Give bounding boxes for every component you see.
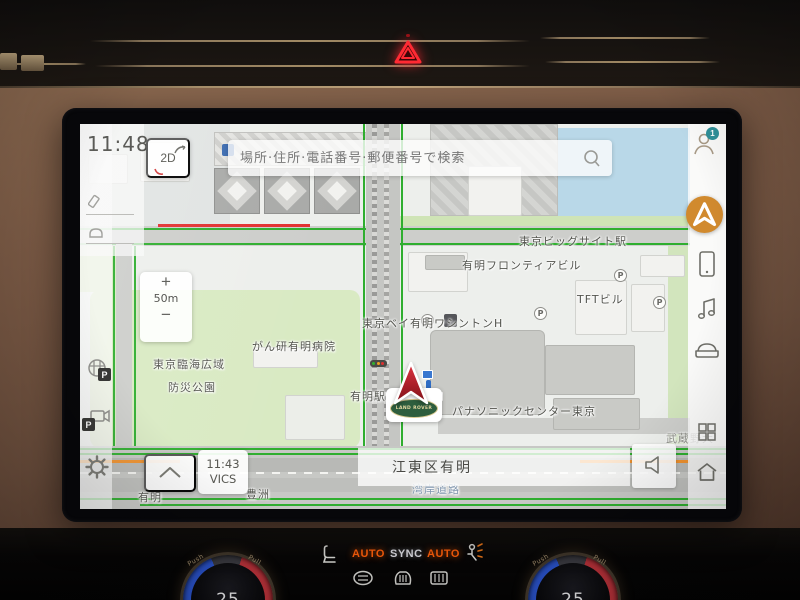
search-bar[interactable]: [228, 140, 612, 176]
right-temp-value: 25: [561, 590, 585, 600]
parking-poi[interactable]: P: [653, 296, 666, 309]
auto-left-button[interactable]: AUTO: [352, 548, 385, 560]
current-location-banner: 江東区有明: [358, 448, 630, 486]
surround-view-parking-button[interactable]: P: [84, 356, 112, 384]
map-label: 有明フロンティアビル: [462, 257, 581, 273]
map-building: [425, 255, 465, 270]
vehicle-button[interactable]: [692, 338, 722, 362]
air-vent-trim: [540, 37, 710, 39]
phone-button[interactable]: [695, 250, 719, 280]
traffic-light-marker: [370, 360, 387, 367]
seat-heat-icon: [352, 569, 374, 587]
zoom-in-button[interactable]: +: [140, 272, 192, 292]
map-building-tft: [575, 280, 627, 335]
map-label: 有明駅: [350, 388, 386, 404]
navigation-arrow-icon: [686, 196, 723, 233]
air-vent-trim: [545, 61, 720, 63]
divider: [86, 243, 134, 244]
rear-defrost-button[interactable]: [428, 569, 450, 590]
collapse-panel-button[interactable]: [144, 454, 196, 492]
vehicle-position-arrow: [392, 360, 430, 408]
auto-right-button[interactable]: AUTO: [427, 548, 460, 560]
car-route-icon: [87, 224, 105, 240]
map-label: TFTビル: [577, 291, 624, 307]
phone-icon: [697, 250, 717, 278]
zoom-out-button[interactable]: −: [140, 305, 192, 325]
compass-arrow-icon: [174, 145, 186, 155]
hazard-triangle-icon: [394, 40, 422, 64]
settings-button[interactable]: [83, 454, 111, 482]
map-label: がん研有明病院: [252, 338, 336, 354]
gear-icon: [84, 454, 110, 480]
air-vent-trim: [95, 65, 530, 67]
navigation-app-button[interactable]: [686, 196, 723, 233]
car-icon: [693, 338, 721, 360]
pen-icon: [88, 194, 104, 210]
hazard-lights-button[interactable]: [386, 32, 430, 72]
car-dashboard-scene: 25 Push Pull 25 Push Pull AUTO SYNC AUTO: [0, 0, 800, 600]
dashboard-top: [0, 0, 800, 88]
map-building: [545, 345, 635, 395]
hazard-indicator-dot: [406, 34, 410, 37]
vent-detail: [0, 53, 17, 70]
map-label: 防災公園: [168, 379, 216, 395]
seat-icon: [320, 544, 340, 564]
parking-badge: P: [98, 368, 111, 381]
search-icon[interactable]: [582, 148, 602, 168]
seat-heater-button[interactable]: [352, 569, 374, 590]
map-label: 東京臨海広域: [153, 356, 225, 372]
parking-poi[interactable]: P: [614, 269, 627, 282]
map-label: 東京ビッグサイト駅: [519, 233, 627, 249]
air-distribution-button[interactable]: [463, 542, 485, 567]
home-button[interactable]: [694, 460, 720, 486]
map-view-mode-button[interactable]: 2D: [146, 138, 190, 178]
vics-info-badge[interactable]: 11:43 VICS: [198, 450, 248, 494]
left-temp-value: 25: [216, 590, 240, 600]
air-vent-trim: [90, 40, 530, 42]
airflow-person-icon: [463, 542, 485, 564]
notification-badge: 1: [706, 127, 719, 140]
map-label: パナソニックセンター東京: [452, 403, 596, 419]
volume-button[interactable]: [632, 444, 676, 488]
home-icon: [695, 460, 719, 484]
map-building: [640, 255, 685, 277]
chevron-up-icon: [158, 465, 182, 479]
media-button[interactable]: [694, 296, 720, 324]
search-input[interactable]: [228, 151, 582, 166]
map-label: 豊洲: [246, 486, 270, 502]
vent-detail: [21, 55, 44, 71]
compass-south-tick-icon: [154, 168, 164, 176]
rear-defrost-icon: [428, 569, 450, 587]
map-building: [285, 395, 345, 440]
apps-button[interactable]: [696, 422, 718, 444]
divider: [86, 214, 134, 215]
front-defrost-button[interactable]: [392, 569, 414, 590]
infotainment-screen: P P P P LAND ROVER 東京ビッグサイト駅: [80, 124, 726, 509]
profile-button[interactable]: 1: [690, 130, 718, 158]
front-defrost-icon: [392, 569, 414, 587]
screen-bezel: P P P P LAND ROVER 東京ビッグサイト駅: [62, 108, 742, 522]
music-note-icon: [695, 296, 719, 322]
vics-label: VICS: [210, 472, 237, 487]
parking-badge: P: [82, 418, 95, 431]
speaker-icon: [642, 454, 666, 476]
current-location-text: 江東区有明: [392, 457, 472, 477]
clock: 11:48: [87, 132, 150, 156]
vics-time: 11:43: [206, 457, 239, 472]
map-label: 東京ベイ有明ワシントンH: [362, 315, 503, 331]
zoom-scale-label: 50m: [140, 292, 192, 305]
zoom-control: + 50m −: [140, 272, 192, 342]
parking-camera-button[interactable]: P: [82, 402, 112, 434]
parking-poi[interactable]: P: [534, 307, 547, 320]
sync-button[interactable]: SYNC: [390, 548, 423, 560]
seat-climate-button[interactable]: [320, 544, 340, 567]
app-grid-icon: [697, 422, 717, 442]
